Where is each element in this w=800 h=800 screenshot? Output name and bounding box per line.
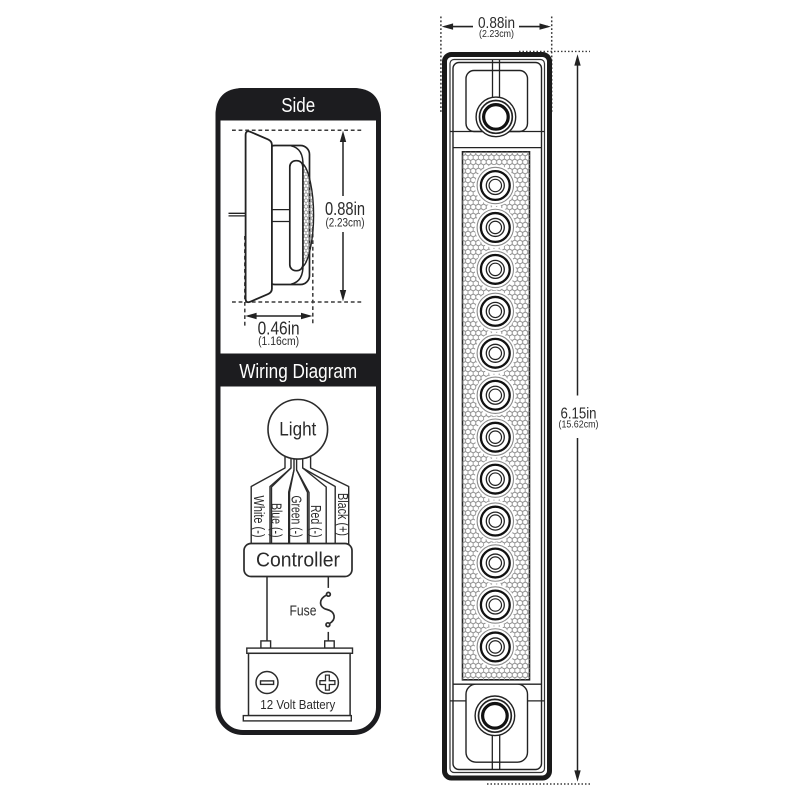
svg-text:Blue (-): Blue (-) (268, 503, 285, 538)
svg-text:(2.23cm): (2.23cm) (479, 28, 514, 40)
svg-text:Side: Side (281, 94, 315, 117)
svg-text:White (-): White (-) (250, 496, 267, 538)
svg-text:Fuse: Fuse (290, 604, 317, 620)
svg-text:Green (-): Green (-) (288, 496, 305, 538)
svg-text:Red (-): Red (-) (307, 505, 324, 538)
svg-text:(2.23cm): (2.23cm) (326, 218, 365, 230)
svg-text:Controller: Controller (256, 549, 340, 572)
svg-text:(15.62cm): (15.62cm) (559, 419, 599, 431)
svg-text:Light: Light (279, 420, 317, 441)
svg-text:12 Volt Battery: 12 Volt Battery (260, 697, 335, 712)
svg-text:(1.16cm): (1.16cm) (258, 336, 299, 348)
svg-text:0.88in: 0.88in (325, 199, 365, 219)
svg-text:Wiring Diagram: Wiring Diagram (239, 360, 357, 383)
svg-text:Black (+): Black (+) (334, 493, 351, 536)
